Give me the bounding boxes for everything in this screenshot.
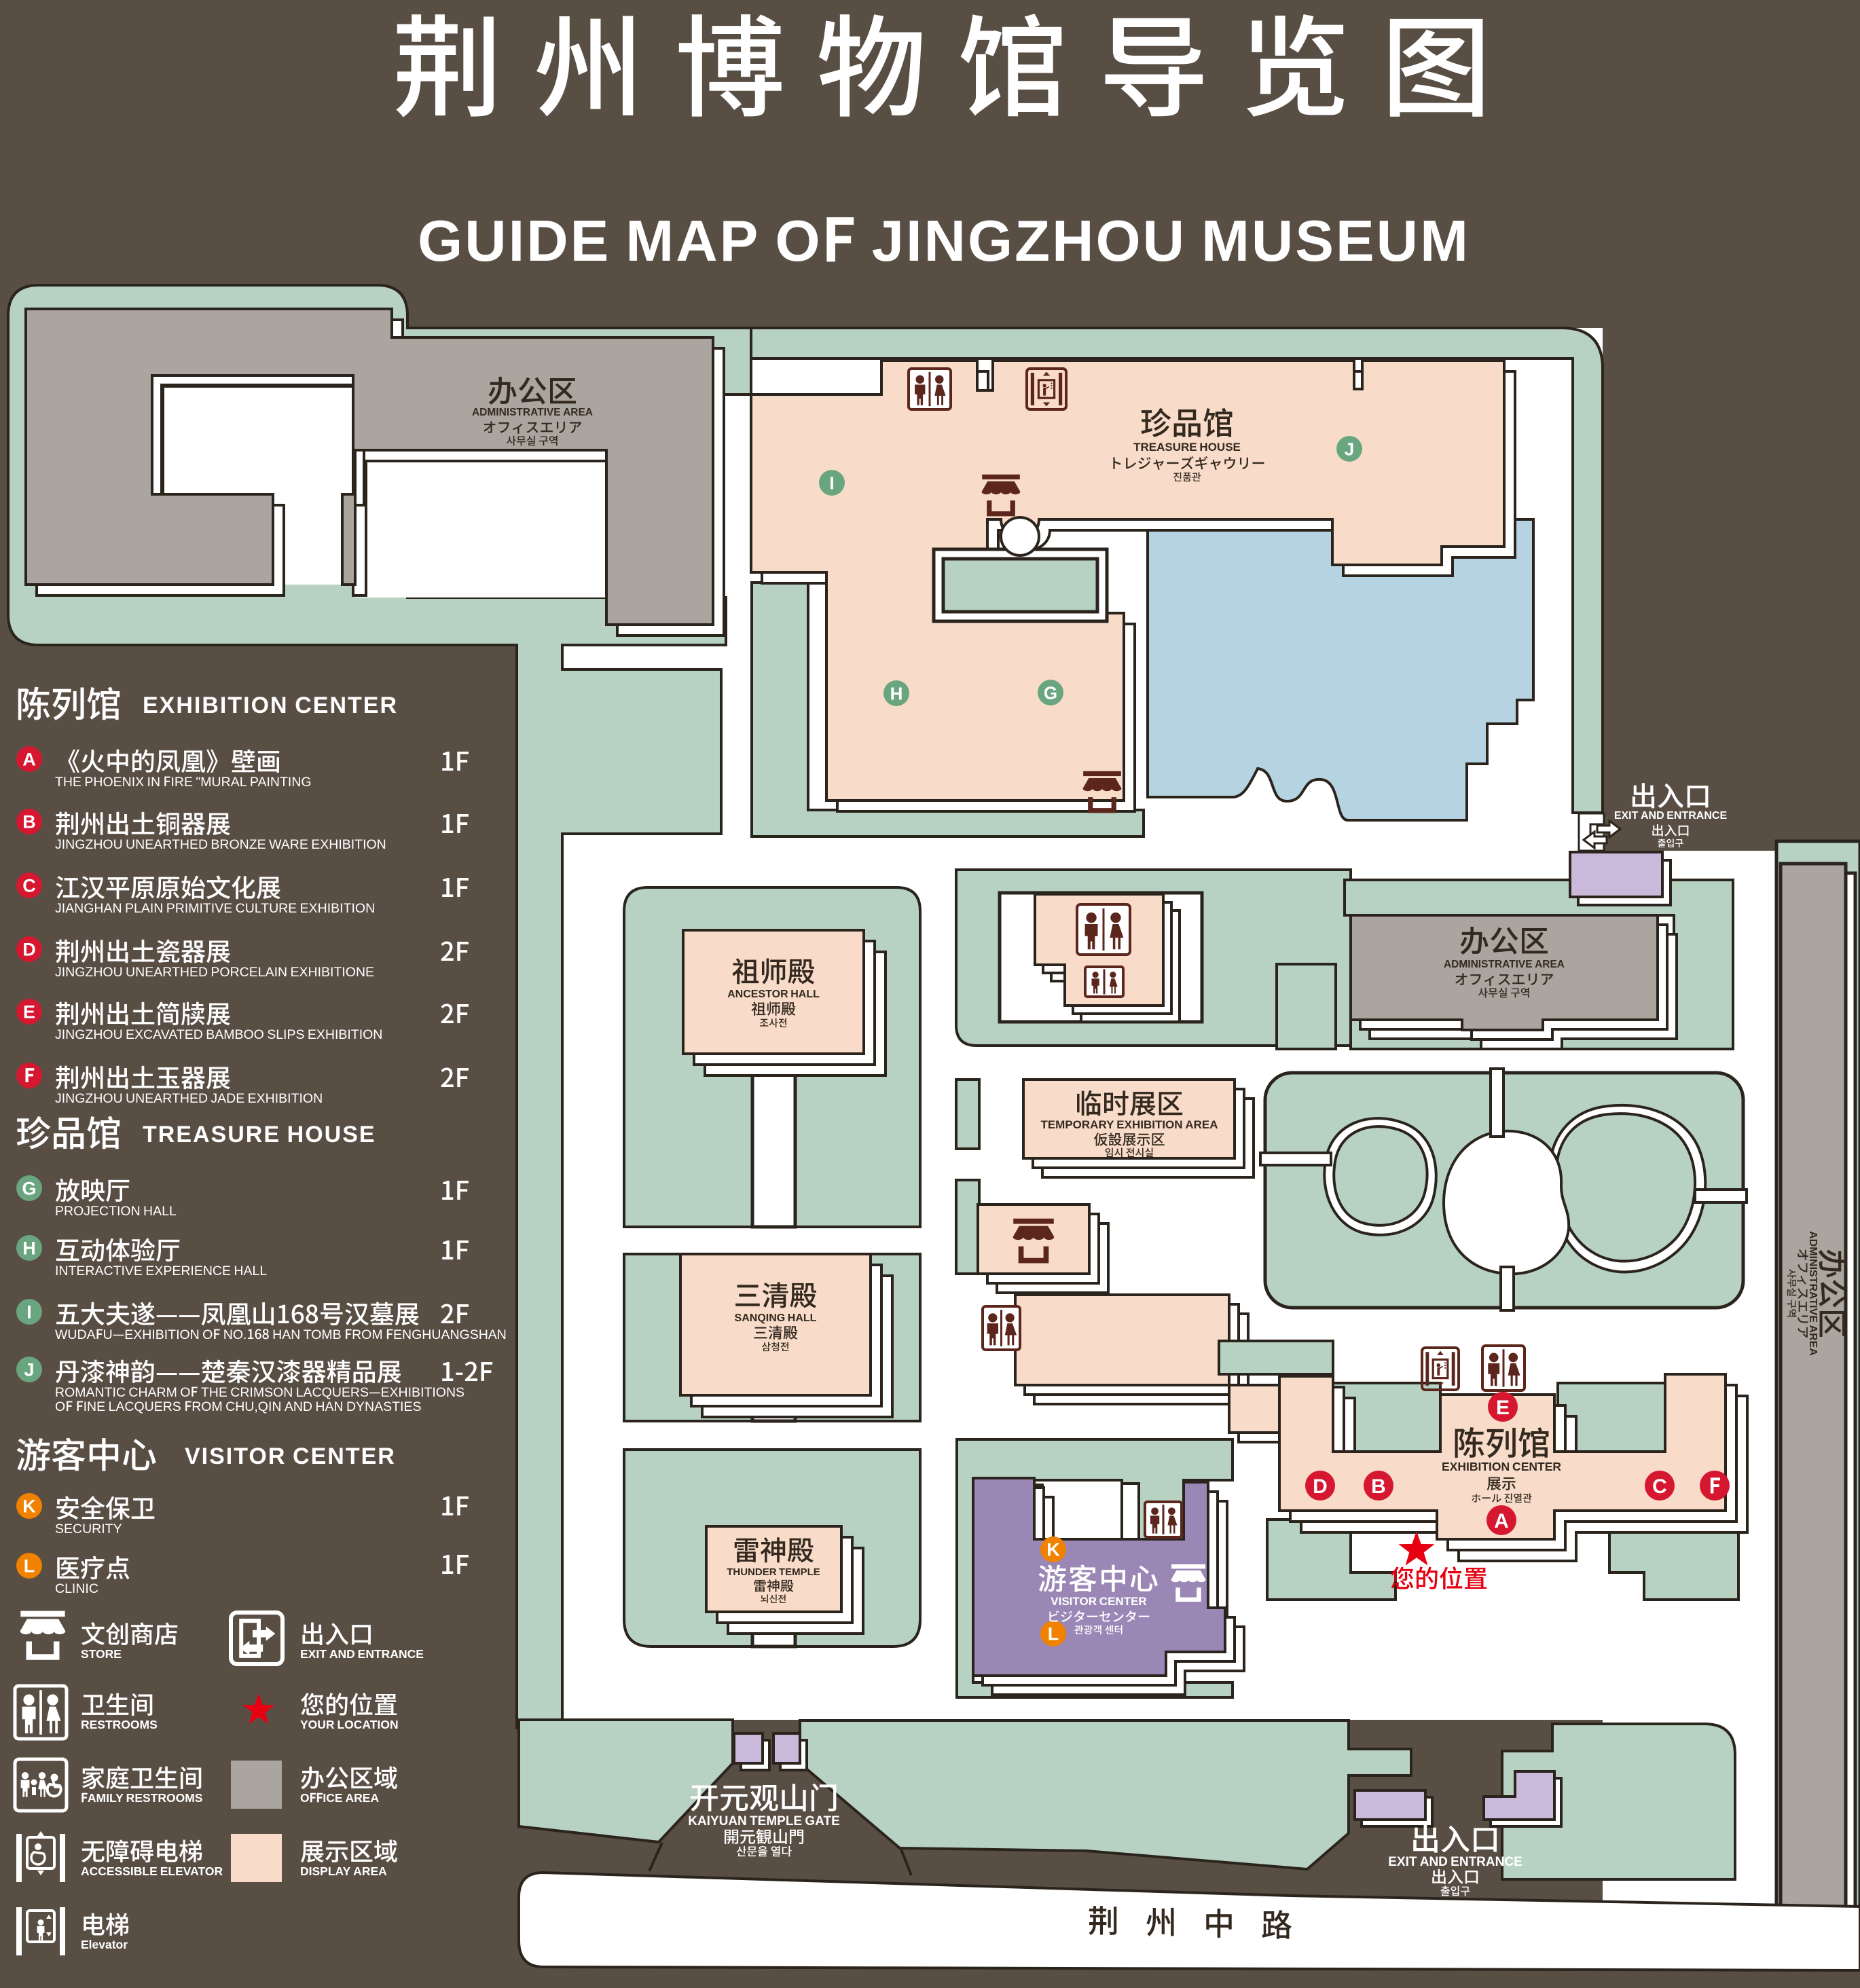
svg-text:D: D (22, 935, 36, 961)
svg-text:TREASURE HOUSE: TREASURE HOUSE (143, 1116, 376, 1149)
svg-text:祖师殿: 祖师殿 (732, 949, 816, 990)
svg-text:사무실 구역: 사무실 구역 (506, 432, 558, 448)
svg-text:임시 전시실: 임시 전시실 (1105, 1145, 1154, 1160)
svg-text:F: F (24, 1061, 34, 1088)
svg-text:A: A (1494, 1504, 1509, 1534)
svg-text:I: I (829, 469, 834, 494)
svg-text:中: 中 (1203, 1900, 1235, 1945)
svg-text:办公区: 办公区 (1459, 917, 1549, 961)
svg-text:진품관: 진품관 (1173, 470, 1201, 484)
svg-text:1-2F: 1-2F (440, 1351, 493, 1388)
svg-text:EXIT AND ENTRANCE: EXIT AND ENTRANCE (1614, 806, 1728, 822)
svg-text:EXHIBITION CENTER: EXHIBITION CENTER (143, 686, 398, 720)
svg-text:Elevator: Elevator (81, 1936, 128, 1953)
svg-text:陈列馆: 陈列馆 (16, 676, 122, 727)
svg-text:TREASURE HOUSE: TREASURE HOUSE (1133, 437, 1241, 454)
svg-text:F: F (1709, 1469, 1721, 1499)
svg-text:ACCESSIBLE ELEVATOR: ACCESSIBLE ELEVATOR (81, 1862, 223, 1879)
svg-text:路: 路 (1261, 1901, 1292, 1946)
svg-text:三清殿: 三清殿 (734, 1273, 818, 1314)
svg-text:RESTROOMS: RESTROOMS (81, 1716, 158, 1733)
svg-text:B: B (1371, 1469, 1386, 1499)
svg-text:K: K (22, 1492, 36, 1518)
svg-text:1F: 1F (440, 1170, 469, 1207)
svg-text:JINGZHOU UNEARTHED PORCELAIN E: JINGZHOU UNEARTHED PORCELAIN EXHIBITIONE (55, 961, 374, 980)
svg-text:1F: 1F (440, 803, 469, 841)
svg-text:사무실 구역: 사무실 구역 (1478, 984, 1530, 1000)
svg-text:州: 州 (1146, 1898, 1177, 1943)
svg-text:VISITOR CENTER: VISITOR CENTER (185, 1437, 396, 1471)
svg-text:VISITOR CENTER: VISITOR CENTER (1051, 1591, 1146, 1608)
svg-text:사무실 구역: 사무실 구역 (1785, 1269, 1799, 1318)
svg-text:H: H (22, 1234, 36, 1260)
svg-text:산문을 열다: 산문을 열다 (736, 1842, 792, 1859)
svg-text:E: E (23, 997, 35, 1024)
svg-text:I: I (26, 1297, 32, 1324)
svg-text:1F: 1F (440, 1230, 469, 1267)
svg-text:출입구: 출입구 (1658, 836, 1684, 850)
svg-text:JIANGHAN PLAIN PRIMITIVE CULTU: JIANGHAN PLAIN PRIMITIVE CULTURE EXHIBIT… (55, 897, 375, 917)
svg-text:2F: 2F (440, 993, 469, 1031)
svg-text:WUDAFU—EXHIBITION OF NO.168 HA: WUDAFU—EXHIBITION OF NO.168 HAN TOMB FRO… (55, 1323, 507, 1343)
svg-text:A: A (22, 745, 36, 771)
svg-text:CLINIC: CLINIC (55, 1577, 98, 1597)
svg-text:PROJECTION HALL: PROJECTION HALL (55, 1200, 177, 1219)
svg-text:OFFICE AREA: OFFICE AREA (300, 1789, 379, 1806)
svg-text:2F: 2F (440, 931, 469, 968)
svg-text:YOUR LOCATION: YOUR LOCATION (300, 1716, 399, 1733)
svg-text:JINGZHOU UNEARTHED JADE EXHIBI: JINGZHOU UNEARTHED JADE EXHIBITION (55, 1087, 323, 1107)
svg-text:EXIT AND ENTRANCE: EXIT AND ENTRANCE (300, 1645, 424, 1662)
svg-text:1F: 1F (440, 741, 469, 778)
svg-text:1F: 1F (440, 1544, 469, 1581)
svg-text:珍品馆: 珍品馆 (16, 1105, 122, 1156)
svg-text:C: C (1652, 1469, 1667, 1499)
svg-text:1F: 1F (440, 1486, 469, 1523)
svg-text:1F: 1F (440, 867, 469, 904)
svg-text:H: H (890, 680, 903, 705)
svg-text:GUIDE MAP OF JINGZHOU MUSEUM: GUIDE MAP OF JINGZHOU MUSEUM (418, 194, 1470, 278)
svg-text:2F: 2F (440, 1293, 469, 1331)
svg-text:SECURITY: SECURITY (55, 1517, 122, 1537)
svg-text:2F: 2F (440, 1057, 469, 1094)
svg-text:G: G (1044, 679, 1057, 704)
svg-text:FAMILY RESTROOMS: FAMILY RESTROOMS (81, 1789, 202, 1806)
svg-text:관광객 센터: 관광객 센터 (1074, 1623, 1123, 1637)
svg-text:뇌신전: 뇌신전 (761, 1592, 787, 1606)
svg-text:JINGZHOU EXCAVATED BAMBOO SLIP: JINGZHOU EXCAVATED BAMBOO SLIPS EXHIBITI… (55, 1023, 382, 1043)
svg-text:游客中心: 游客中心 (16, 1427, 157, 1478)
svg-text:J: J (1345, 435, 1354, 460)
svg-text:荆: 荆 (1088, 1897, 1119, 1942)
svg-text:삼청전: 삼청전 (761, 1340, 789, 1354)
svg-text:您的位置: 您的位置 (1390, 1560, 1488, 1595)
svg-text:E: E (1496, 1391, 1510, 1420)
svg-text:STORE: STORE (81, 1645, 122, 1662)
svg-text:荆州博物馆导览图: 荆州博物馆导览图 (393, 0, 1522, 139)
svg-text:조사전: 조사전 (759, 1016, 787, 1030)
svg-text:G: G (22, 1174, 36, 1200)
svg-text:J: J (24, 1355, 34, 1382)
svg-text:THE PHOENIX IN FIRE "MURAL PAI: THE PHOENIX IN FIRE "MURAL PAINTING (55, 771, 312, 790)
svg-text:출입구: 출입구 (1440, 1882, 1470, 1898)
svg-text:L: L (24, 1551, 35, 1578)
svg-text:DISPLAY AREA: DISPLAY AREA (300, 1862, 387, 1879)
svg-text:B: B (22, 807, 36, 834)
svg-text:雷神殿: 雷神殿 (733, 1529, 814, 1568)
svg-text:D: D (1313, 1469, 1328, 1499)
svg-text:INTERACTIVE EXPERIENCE HALL: INTERACTIVE EXPERIENCE HALL (55, 1259, 267, 1279)
svg-text:C: C (22, 871, 36, 898)
svg-text:OF FINE LACQUERS FROM CHU,QIN: OF FINE LACQUERS FROM CHU,QIN AND HAN DY… (55, 1395, 421, 1415)
svg-text:JINGZHOU UNEARTHED BRONZE WARE: JINGZHOU UNEARTHED BRONZE WARE EXHIBITIO… (55, 833, 386, 853)
